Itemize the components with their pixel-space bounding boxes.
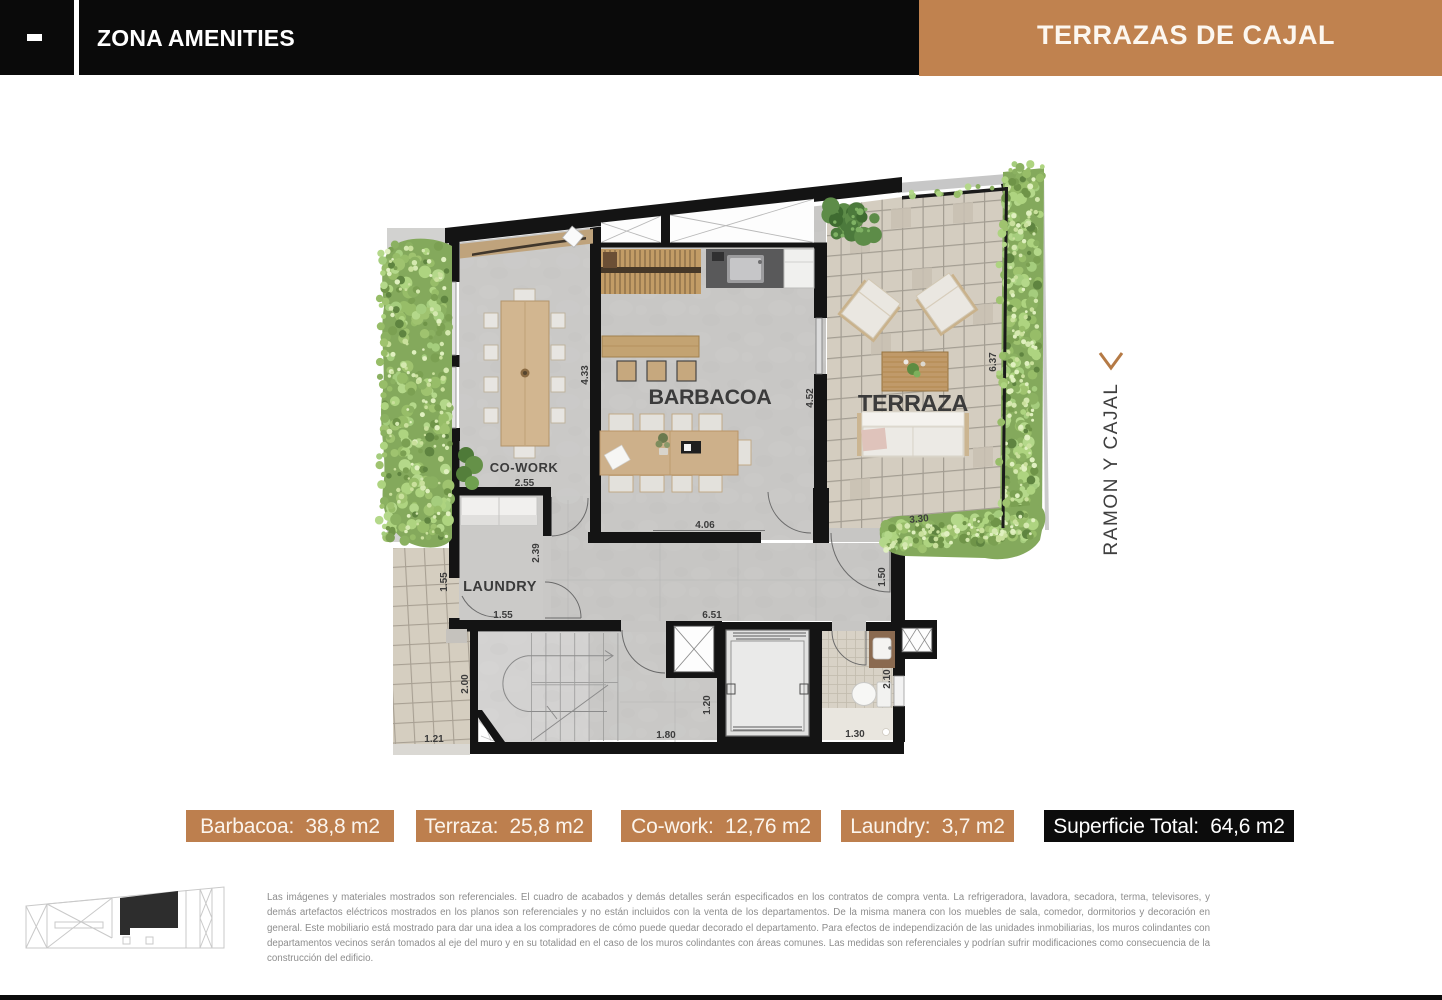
- svg-text:1.80: 1.80: [656, 730, 676, 741]
- svg-text:1.30: 1.30: [845, 729, 865, 740]
- svg-text:2.00: 2.00: [460, 674, 471, 694]
- svg-text:4.33: 4.33: [580, 365, 591, 385]
- svg-text:CO-WORK: CO-WORK: [490, 460, 559, 475]
- svg-text:BARBACOA: BARBACOA: [648, 385, 771, 409]
- svg-text:1.55: 1.55: [493, 610, 513, 621]
- svg-text:6.51: 6.51: [702, 610, 722, 621]
- svg-text:1.50: 1.50: [877, 567, 888, 587]
- svg-text:1.20: 1.20: [702, 695, 713, 715]
- svg-text:TERRAZA: TERRAZA: [858, 390, 968, 416]
- svg-text:4.06: 4.06: [695, 520, 715, 531]
- svg-text:1.55: 1.55: [439, 572, 450, 592]
- svg-text:2.39: 2.39: [531, 543, 542, 563]
- svg-text:3.30: 3.30: [909, 513, 930, 526]
- svg-text:LAUNDRY: LAUNDRY: [463, 579, 537, 595]
- svg-text:2.55: 2.55: [515, 478, 535, 489]
- svg-text:1.21: 1.21: [424, 734, 444, 745]
- svg-text:4.52: 4.52: [805, 388, 816, 408]
- svg-text:2.10: 2.10: [882, 669, 893, 689]
- svg-text:6.37: 6.37: [988, 352, 999, 372]
